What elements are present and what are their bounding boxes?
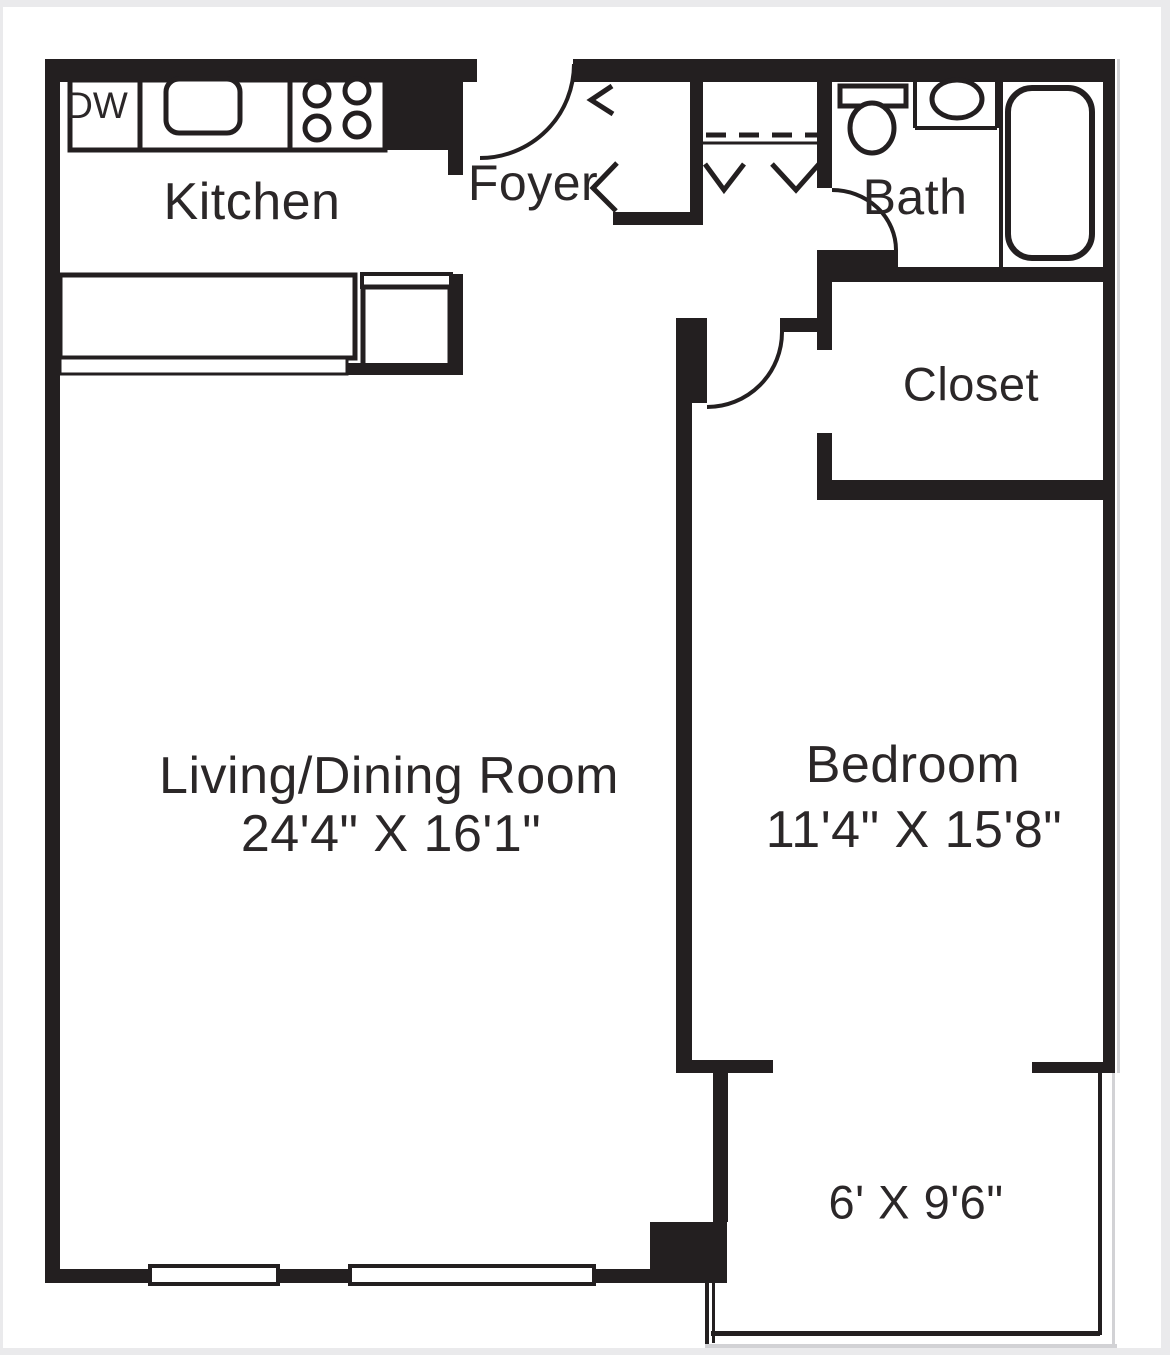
kitchen-peninsula-counter <box>60 275 355 358</box>
refrigerator <box>385 82 451 150</box>
bath-door-leaf <box>820 250 898 267</box>
bifold-door-right <box>772 164 819 190</box>
foyer-bottom-wall-stub <box>613 212 703 225</box>
entry-door-swing-arrow-top <box>591 86 613 114</box>
divider-wall-top-cap <box>676 318 707 332</box>
bathtub <box>1008 88 1092 258</box>
dishwasher-label: DW <box>66 85 128 127</box>
kitchen-sink <box>166 79 240 133</box>
stove-burner-2 <box>345 79 369 103</box>
foyer-right-wall <box>690 70 703 225</box>
kitchen-label: Kitchen <box>164 172 341 232</box>
floor-plan-page: DW Kitchen Foyer Bath Closet Living/Dini… <box>0 0 1170 1355</box>
stove-burner-4 <box>345 113 369 137</box>
peninsula-end-wall-vertical <box>450 274 463 374</box>
bedroom-door-leaf <box>692 332 707 403</box>
peninsula-end-wall-horizontal <box>347 363 463 375</box>
balcony-rail-right-shadow <box>1112 1073 1115 1347</box>
bedroom-bottom-wall-right <box>1032 1062 1115 1073</box>
left-wall <box>45 59 60 1283</box>
corner-column <box>650 1222 727 1283</box>
exterior-walls <box>45 59 1120 1283</box>
bedroom-label: Bedroom <box>806 735 1021 795</box>
balcony-rail-right <box>1098 1073 1102 1335</box>
toilet-bowl <box>850 103 894 153</box>
bedroom-bottom-wall-left <box>676 1060 773 1073</box>
kitchen-appliance <box>363 287 450 367</box>
balcony-rail-left-outer <box>705 1283 709 1349</box>
living-room-windows <box>150 1266 594 1284</box>
balcony-rail-bottom <box>711 1331 1100 1336</box>
bath-left-wall-upper <box>817 70 832 188</box>
window-1 <box>150 1266 278 1284</box>
stove-burner-3 <box>305 116 329 140</box>
bedroom-dimensions: 11'4" X 15'8" <box>766 800 1063 860</box>
bath-sink <box>932 80 982 118</box>
balcony-left-wall <box>713 1073 728 1222</box>
bedroom-door-wall-stub <box>780 318 832 332</box>
page-edge-left <box>0 0 3 1355</box>
living-dining-label: Living/Dining Room <box>159 746 619 806</box>
page-edge-right <box>1161 0 1170 1355</box>
coat-closet <box>703 135 819 190</box>
page-edge-top <box>0 0 1170 7</box>
right-wall-shadow-line <box>1117 59 1120 1073</box>
top-wall-right-segment <box>573 59 1115 82</box>
closet-bottom-wall <box>817 480 1115 500</box>
bifold-door-left <box>705 164 744 190</box>
stove-burner-1 <box>305 82 329 106</box>
foyer-label: Foyer <box>468 154 598 212</box>
living-dining-dimensions: 24'4" X 16'1" <box>241 804 541 864</box>
page-edge-bottom <box>0 1348 1170 1355</box>
window-2 <box>350 1266 594 1284</box>
living-bedroom-divider-wall <box>676 318 692 1060</box>
kitchen-peninsula-edge <box>60 358 347 374</box>
bath-bottom-wall <box>820 267 1115 282</box>
bedroom-door-arc <box>707 332 782 407</box>
balcony-dimensions: 6' X 9'6" <box>828 1175 1003 1230</box>
closet-label: Closet <box>903 357 1039 412</box>
bath-label: Bath <box>863 168 968 226</box>
entry-door-arc <box>480 64 574 158</box>
right-wall <box>1103 59 1115 1073</box>
